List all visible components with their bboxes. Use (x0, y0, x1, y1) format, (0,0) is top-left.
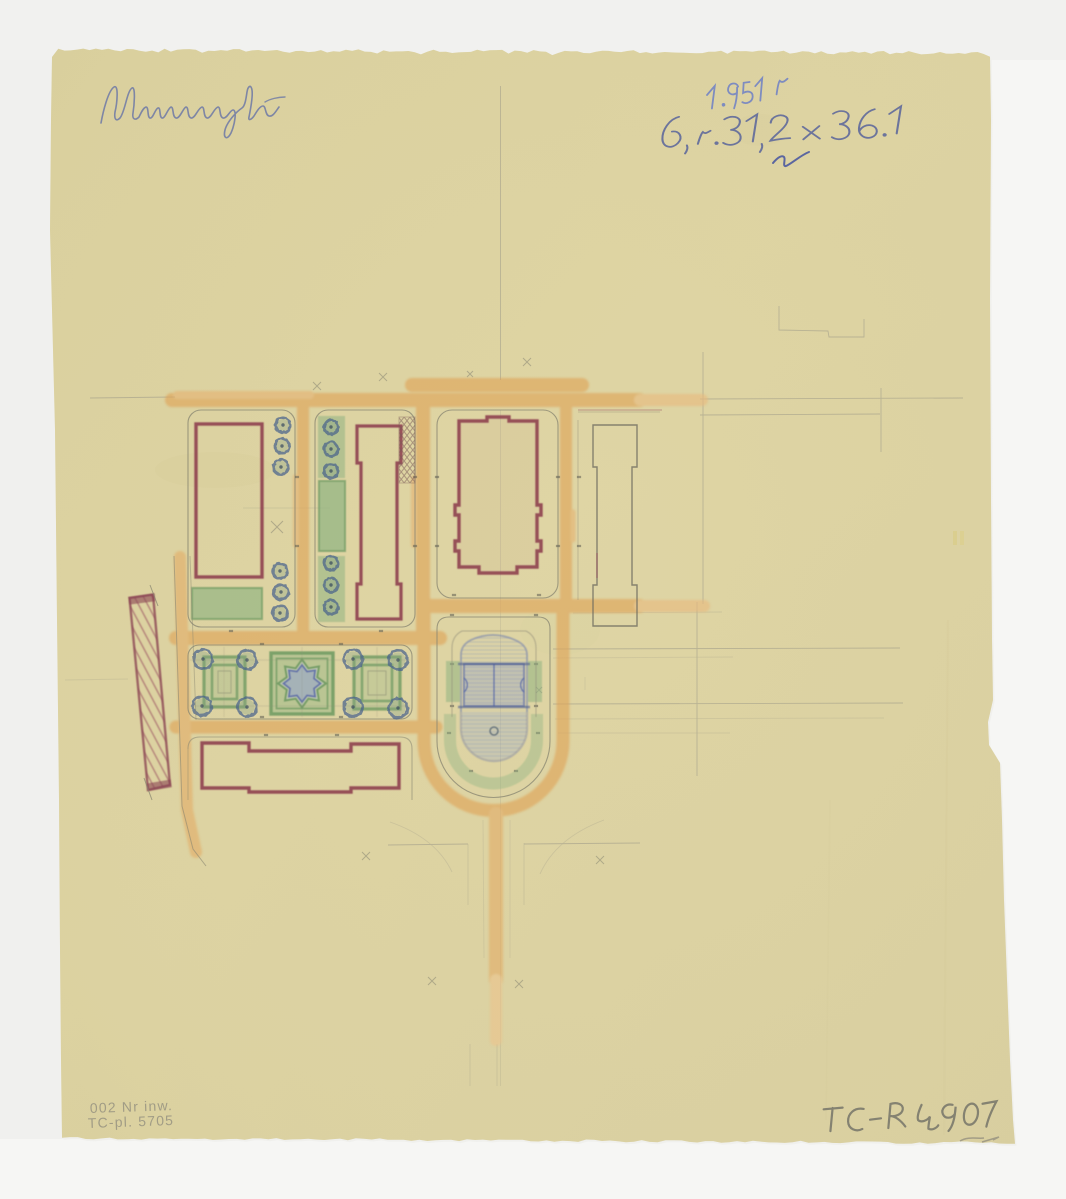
svg-text:TC-pl. 5705: TC-pl. 5705 (88, 1112, 175, 1131)
